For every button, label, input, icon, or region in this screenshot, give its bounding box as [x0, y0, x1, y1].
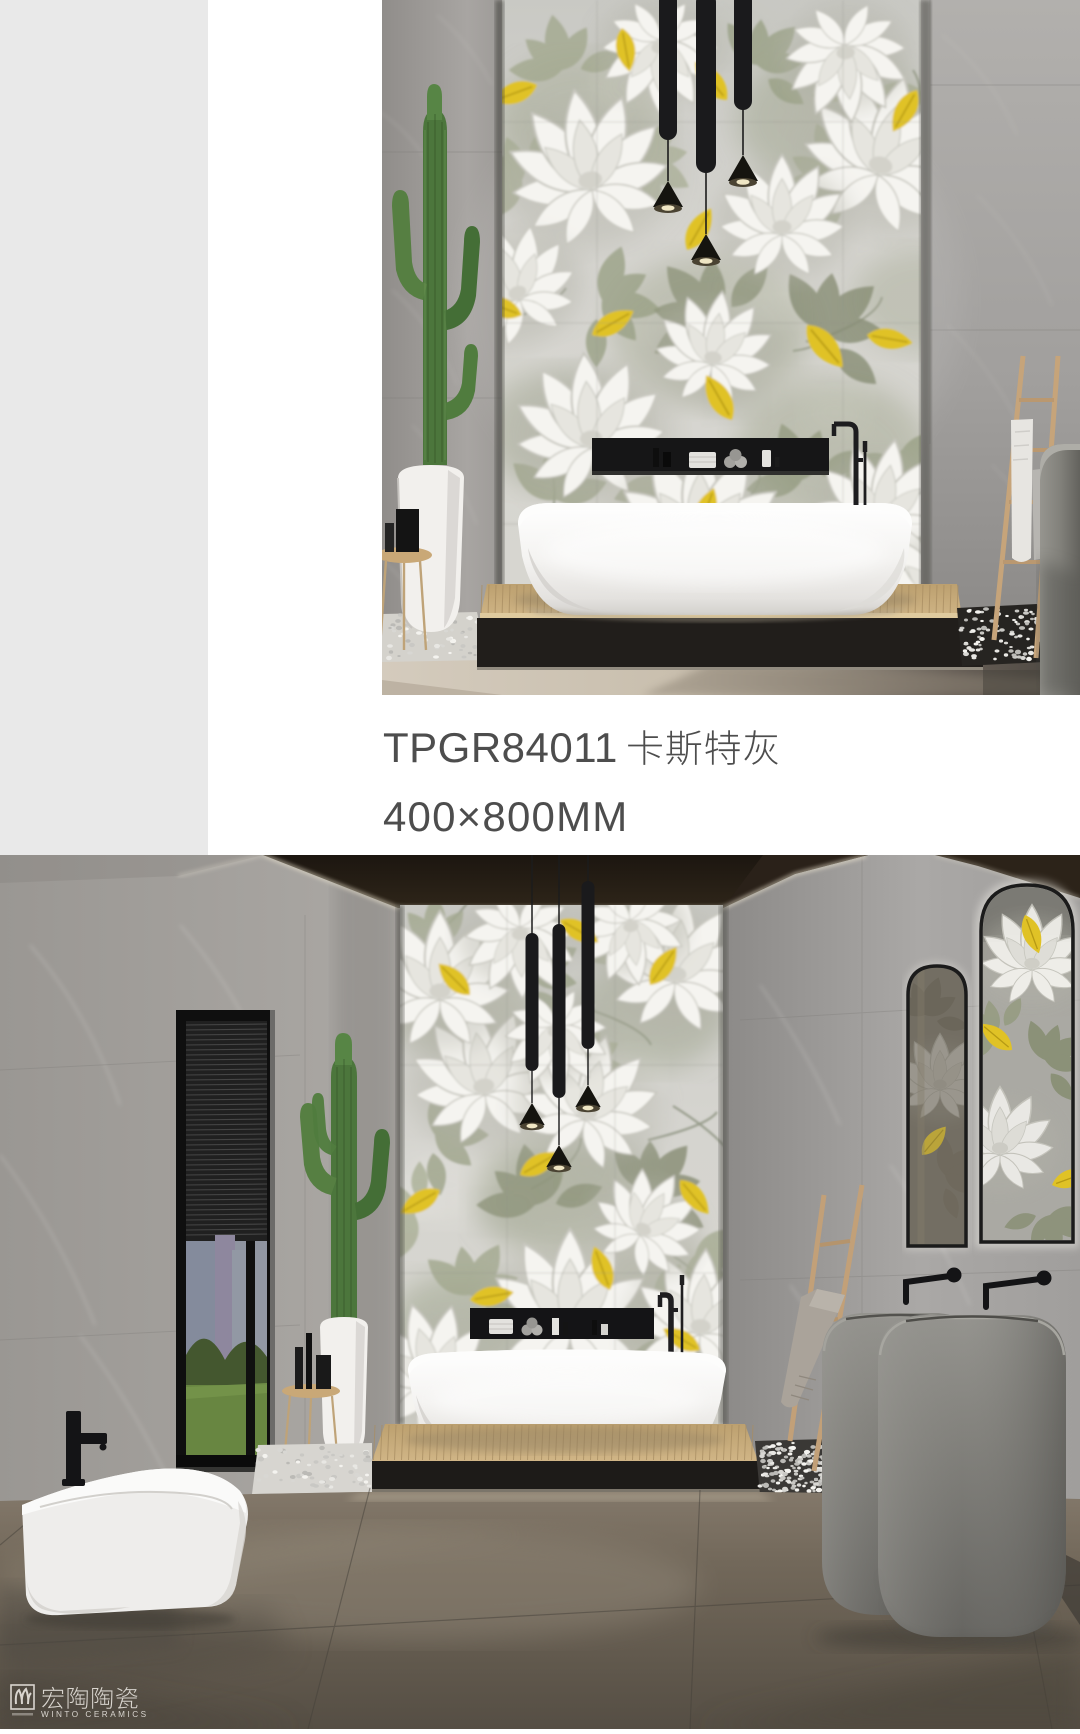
svg-text:WINTO CERAMICS: WINTO CERAMICS: [41, 1710, 149, 1719]
svg-text:TPGR84011: TPGR84011: [383, 724, 618, 771]
svg-text:400×800MM: 400×800MM: [383, 793, 628, 840]
